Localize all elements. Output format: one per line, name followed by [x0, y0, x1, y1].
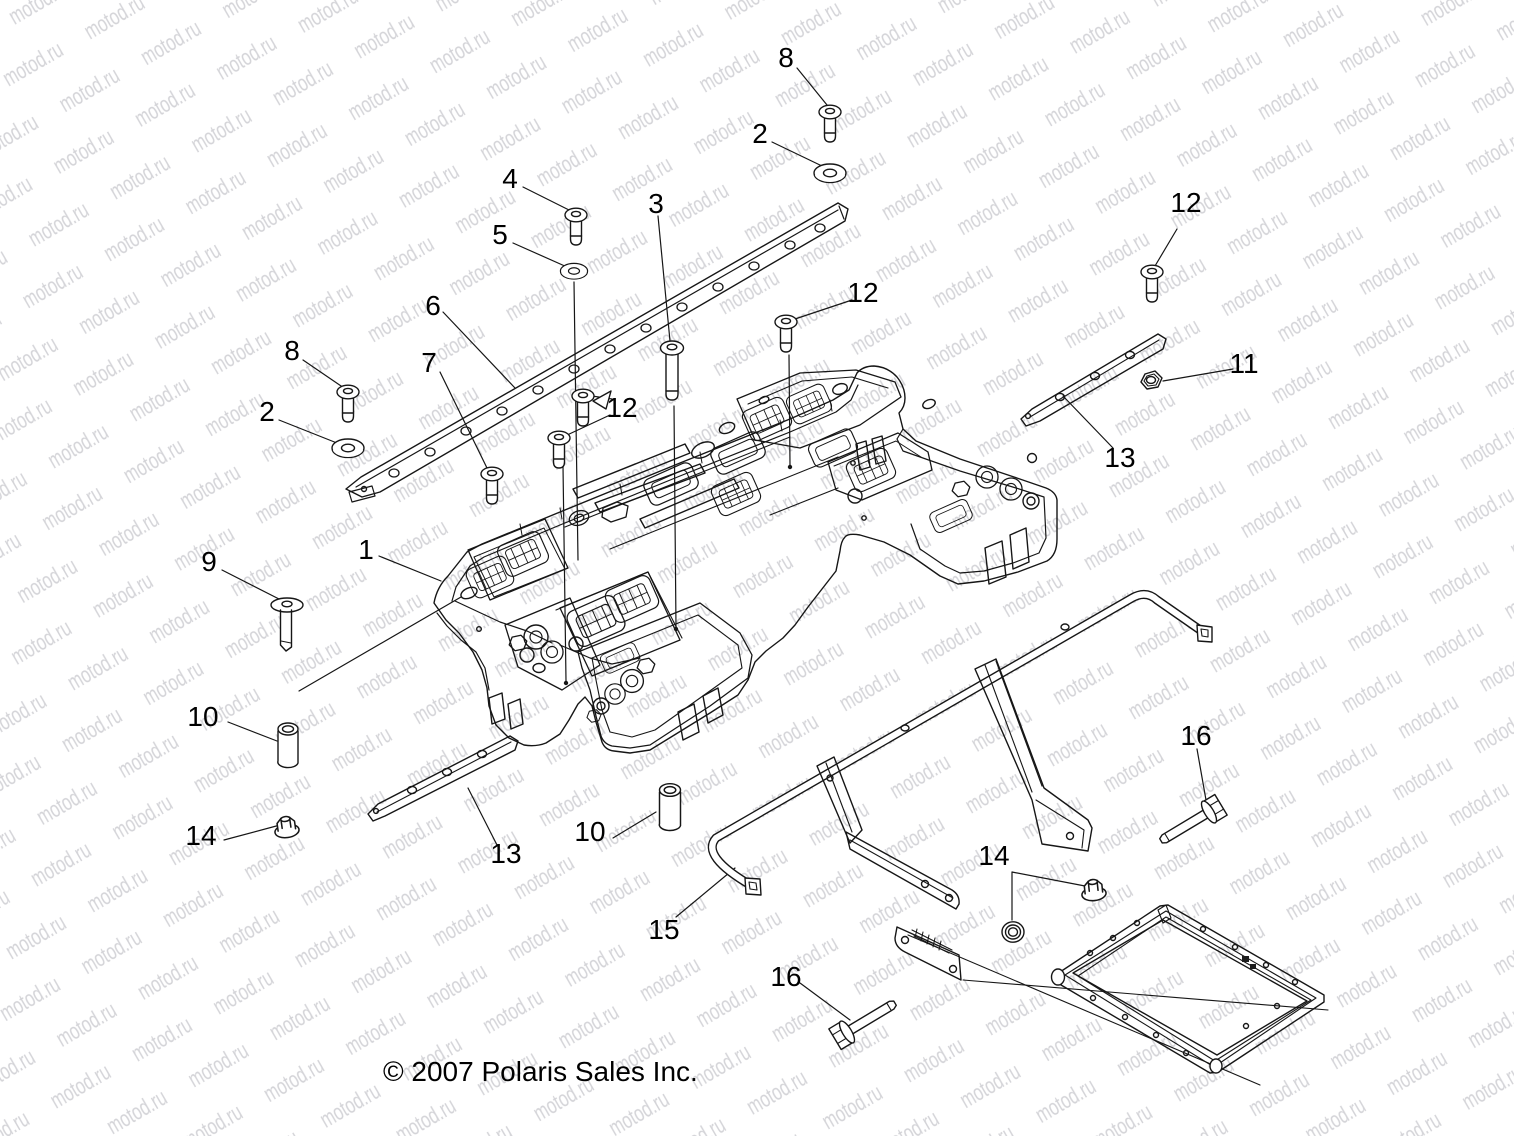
svg-text:8: 8	[778, 42, 794, 73]
svg-text:© 2007 Polaris Sales Inc.: © 2007 Polaris Sales Inc.	[383, 1056, 698, 1087]
svg-text:10: 10	[187, 701, 218, 732]
svg-text:12: 12	[847, 277, 878, 308]
svg-text:11: 11	[1229, 348, 1258, 379]
svg-text:14: 14	[185, 820, 216, 851]
svg-text:6: 6	[425, 290, 441, 321]
svg-text:3: 3	[648, 188, 664, 219]
svg-text:9: 9	[201, 546, 217, 577]
svg-text:16: 16	[770, 961, 801, 992]
svg-text:1: 1	[358, 534, 374, 565]
svg-text:12: 12	[1170, 187, 1201, 218]
svg-text:5: 5	[492, 219, 508, 250]
svg-text:13: 13	[1104, 442, 1135, 473]
svg-text:8: 8	[284, 335, 300, 366]
svg-text:13: 13	[490, 838, 521, 869]
svg-text:2: 2	[752, 118, 768, 149]
svg-text:16: 16	[1180, 720, 1211, 751]
svg-text:15: 15	[648, 914, 679, 945]
svg-text:12: 12	[606, 392, 637, 423]
svg-text:10: 10	[574, 816, 605, 847]
svg-text:4: 4	[502, 163, 518, 194]
svg-text:7: 7	[421, 347, 437, 378]
svg-text:14: 14	[978, 840, 1009, 871]
svg-text:2: 2	[259, 396, 275, 427]
